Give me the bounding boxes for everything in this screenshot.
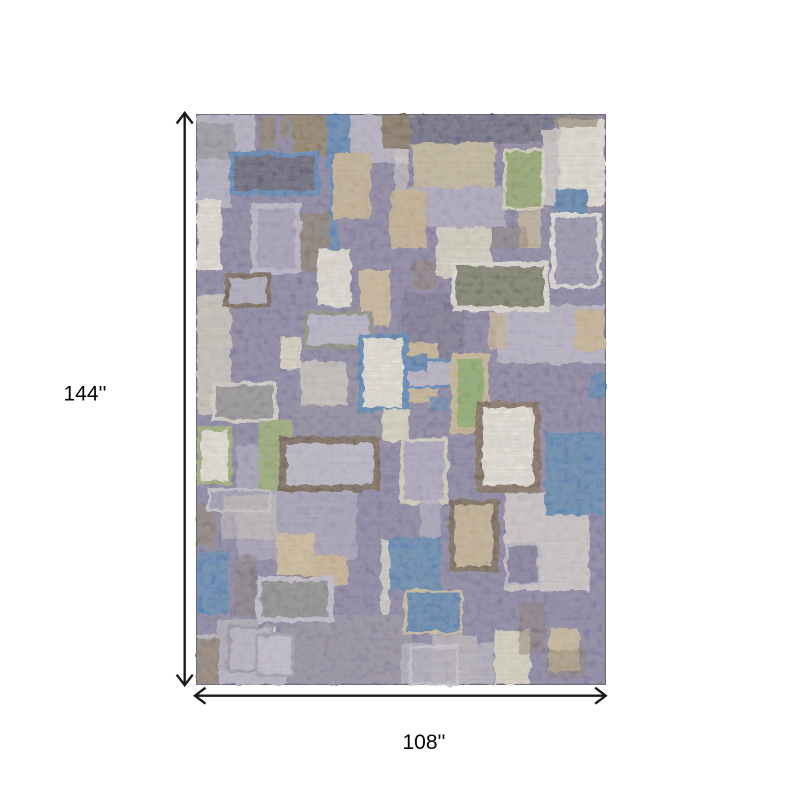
svg-text:108'': 108'' — [402, 731, 445, 754]
svg-text:144'': 144'' — [63, 383, 106, 406]
